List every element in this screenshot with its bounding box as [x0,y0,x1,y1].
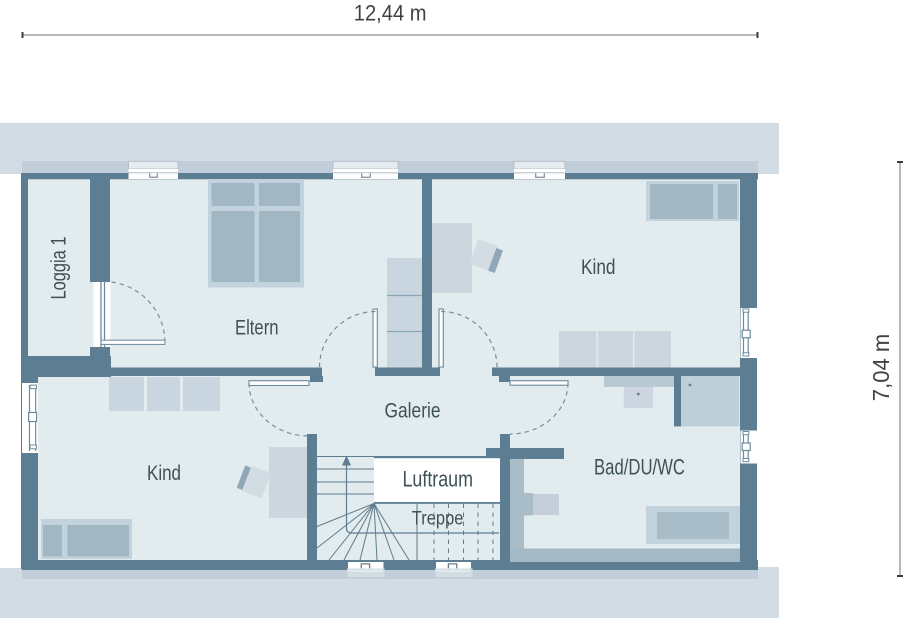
svg-text:Galerie: Galerie [385,400,441,423]
svg-text:Treppe: Treppe [412,509,464,530]
svg-text:Loggia 1: Loggia 1 [48,237,71,300]
svg-text:Bad/DU/WC: Bad/DU/WC [594,455,685,480]
svg-text:Eltern: Eltern [235,317,279,340]
svg-text:Luftraum: Luftraum [403,467,474,492]
svg-text:12,44 m: 12,44 m [354,0,427,25]
svg-text:Kind: Kind [147,462,181,485]
svg-text:7,04 m: 7,04 m [868,334,894,402]
svg-text:Kind: Kind [581,256,616,279]
